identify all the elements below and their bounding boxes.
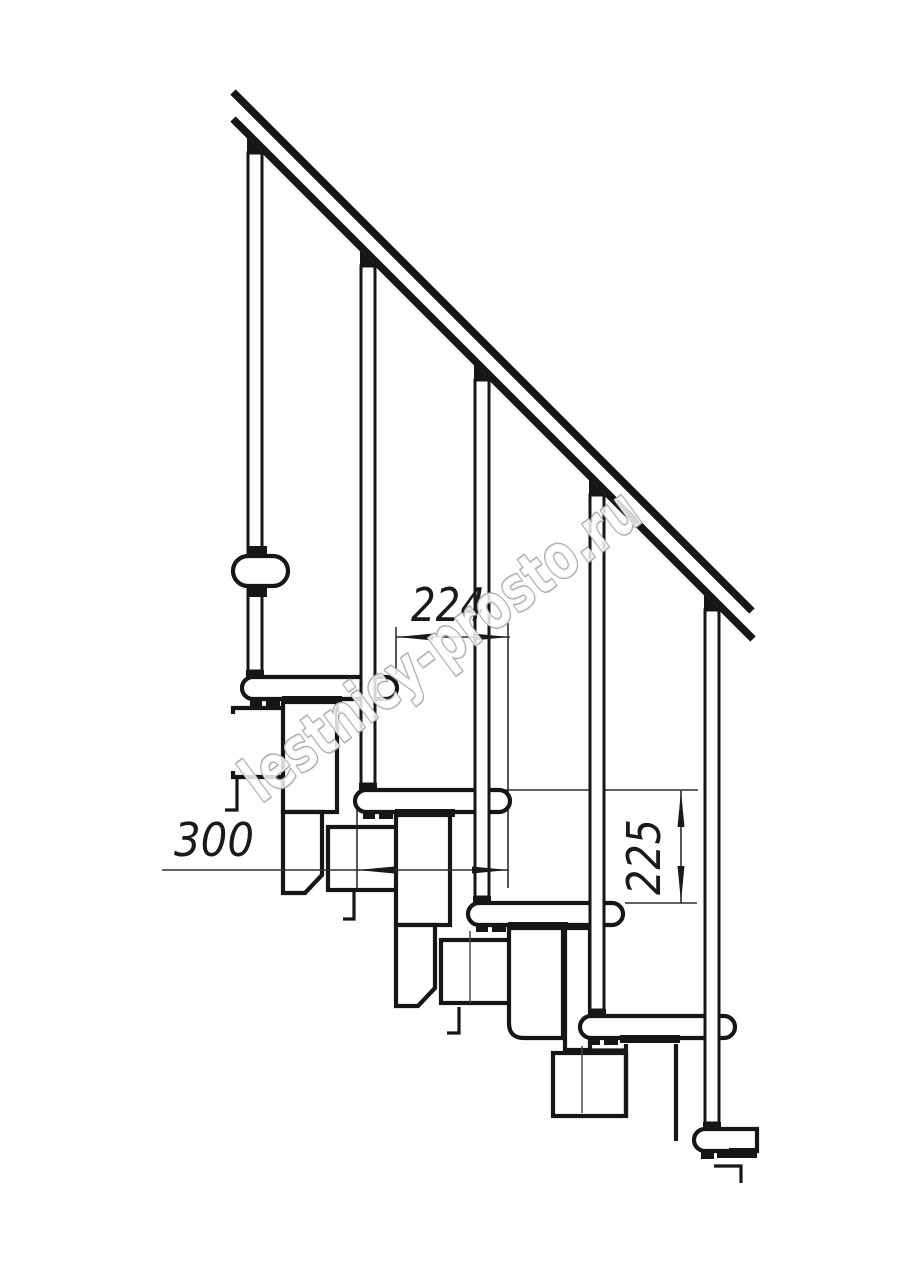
module-square-3	[441, 940, 514, 1003]
module-block-4	[626, 1044, 676, 1141]
module-hidden-edge-3	[447, 1007, 459, 1033]
staircase-technical-drawing: 224 300 225 lestnicy-prosto.ru	[0, 0, 914, 1280]
handrail-top-edge	[233, 92, 752, 611]
rise-arrow-down	[678, 866, 685, 902]
rise-arrow-up	[678, 791, 685, 827]
module-hidden-edge-2	[343, 892, 354, 919]
baluster-5-bottom-connector	[703, 1122, 721, 1130]
module-square-5-cropped	[714, 1166, 741, 1183]
baluster-5-rod	[705, 610, 719, 1123]
baluster-4-bottom-connector	[588, 1009, 606, 1017]
handrail	[233, 92, 753, 639]
baluster-2-bottom-connector	[359, 783, 377, 791]
module-neck-2	[396, 925, 435, 1006]
rise-value: 225	[617, 819, 671, 895]
module-block-3	[509, 928, 563, 1038]
staircase-drawing-page: 224 300 225 lestnicy-prosto.ru	[0, 0, 914, 1280]
module-hidden-edge-1	[225, 779, 237, 810]
depth-value: 300	[174, 813, 254, 867]
module-neck-1	[283, 812, 322, 893]
handrail-end-fitting	[233, 546, 288, 597]
baluster-3-bottom-connector	[473, 896, 491, 904]
module-square-2	[328, 827, 401, 890]
fitting-lower-clamp	[249, 586, 267, 597]
fitting-pill	[233, 556, 288, 586]
tread-5-cropped	[694, 1129, 757, 1151]
dimension-rise: 225	[617, 791, 685, 902]
module-square-4	[553, 1053, 626, 1116]
baluster-5	[703, 594, 721, 1130]
baluster-1-bottom-connector	[246, 670, 264, 678]
